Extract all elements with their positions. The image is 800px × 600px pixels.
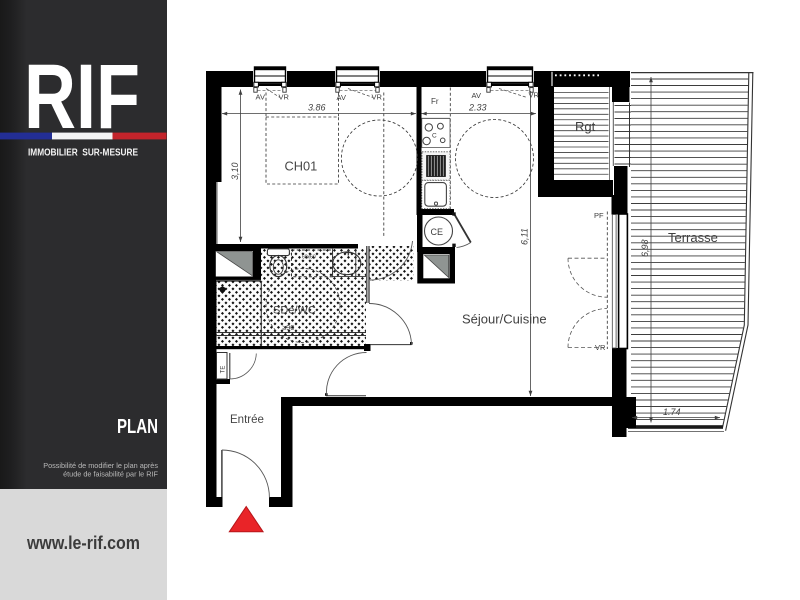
svg-text:Fr: Fr	[431, 97, 439, 106]
svg-text:6,11: 6,11	[520, 228, 530, 245]
svg-text:PLAN: PLAN	[117, 416, 158, 438]
svg-text:C: C	[432, 133, 437, 140]
svg-text:Séjour/Cuisine: Séjour/Cuisine	[462, 312, 547, 327]
svg-text:6,98: 6,98	[640, 239, 650, 257]
svg-text:AV: AV	[337, 93, 346, 102]
svg-text:VR: VR	[279, 93, 290, 102]
svg-text:AV: AV	[256, 93, 265, 102]
svg-text:TE: TE	[221, 366, 227, 374]
svg-text:IMMOBILIER SUR-MESURE: IMMOBILIER SUR-MESURE	[28, 148, 138, 159]
svg-text:CE: CE	[431, 227, 444, 237]
svg-text:60x60: 60x60	[302, 255, 316, 261]
svg-text:3,10: 3,10	[230, 162, 240, 180]
svg-text:Terrasse: Terrasse	[668, 230, 718, 245]
svg-text:SDe/WC: SDe/WC	[273, 305, 316, 317]
svg-text:étude de faisabilité par le RI: étude de faisabilité par le RIF	[63, 470, 158, 479]
svg-text:CH01: CH01	[285, 159, 318, 174]
svg-text:www.le-rif.com: www.le-rif.com	[26, 533, 140, 553]
svg-text:Entrée: Entrée	[230, 414, 264, 426]
svg-text:3.86: 3.86	[308, 103, 326, 113]
svg-text:AV: AV	[472, 91, 481, 100]
svg-text:PF: PF	[594, 211, 604, 220]
svg-text:1.74: 1.74	[663, 407, 681, 417]
svg-text:2.33: 2.33	[468, 103, 487, 113]
svg-text:Rgt: Rgt	[575, 119, 596, 134]
svg-text:≥90: ≥90	[282, 323, 294, 332]
svg-text:VR: VR	[372, 93, 383, 102]
